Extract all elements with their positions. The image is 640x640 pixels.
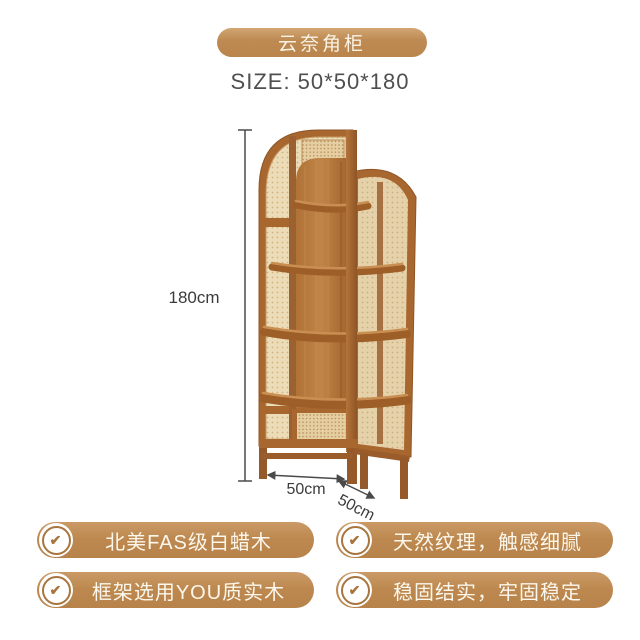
check-icon: ✔ <box>39 573 73 607</box>
feature-badge-stable-sturdy: ✔ 稳固结实，牢固稳定 <box>336 572 613 608</box>
bottom-apron <box>292 409 353 444</box>
right-panel <box>352 169 416 457</box>
feature-badge-ash-wood: ✔ 北美FAS级白蜡木 <box>37 522 314 558</box>
feature-label: 天然纹理，触感细腻 <box>367 526 582 555</box>
height-label: 180cm <box>168 288 219 307</box>
leg <box>259 448 267 479</box>
width-label: 50cm <box>286 481 325 498</box>
size-label: SIZE: 50*50*180 <box>0 69 640 95</box>
feature-label: 北美FAS级白蜡木 <box>79 526 272 555</box>
corner-cabinet-illustration: 180cm <box>150 100 490 520</box>
product-title-badge: 云奈角柜 <box>217 28 427 57</box>
front-post <box>346 130 357 452</box>
leg <box>400 457 408 499</box>
product-title-text: 云奈角柜 <box>278 29 366 56</box>
check-icon: ✔ <box>338 523 372 557</box>
feature-badge-natural-texture: ✔ 天然纹理，触感细腻 <box>336 522 613 558</box>
product-image: 180cm <box>150 100 490 520</box>
leg <box>360 453 368 489</box>
check-icon: ✔ <box>39 523 73 557</box>
feature-label: 框架选用YOU质实木 <box>66 576 285 605</box>
feature-badges: ✔ 北美FAS级白蜡木 ✔ 天然纹理，触感细腻 ✔ 框架选用YOU质实木 ✔ 稳… <box>37 522 613 608</box>
left-panel-stile <box>289 136 296 439</box>
width-dimension-line <box>268 475 344 479</box>
back-panel <box>296 158 352 408</box>
feature-label: 稳固结实，牢固稳定 <box>367 576 582 605</box>
check-icon: ✔ <box>338 573 372 607</box>
feature-badge-solid-wood-frame: ✔ 框架选用YOU质实木 <box>37 572 314 608</box>
height-dimension-line <box>238 130 252 481</box>
